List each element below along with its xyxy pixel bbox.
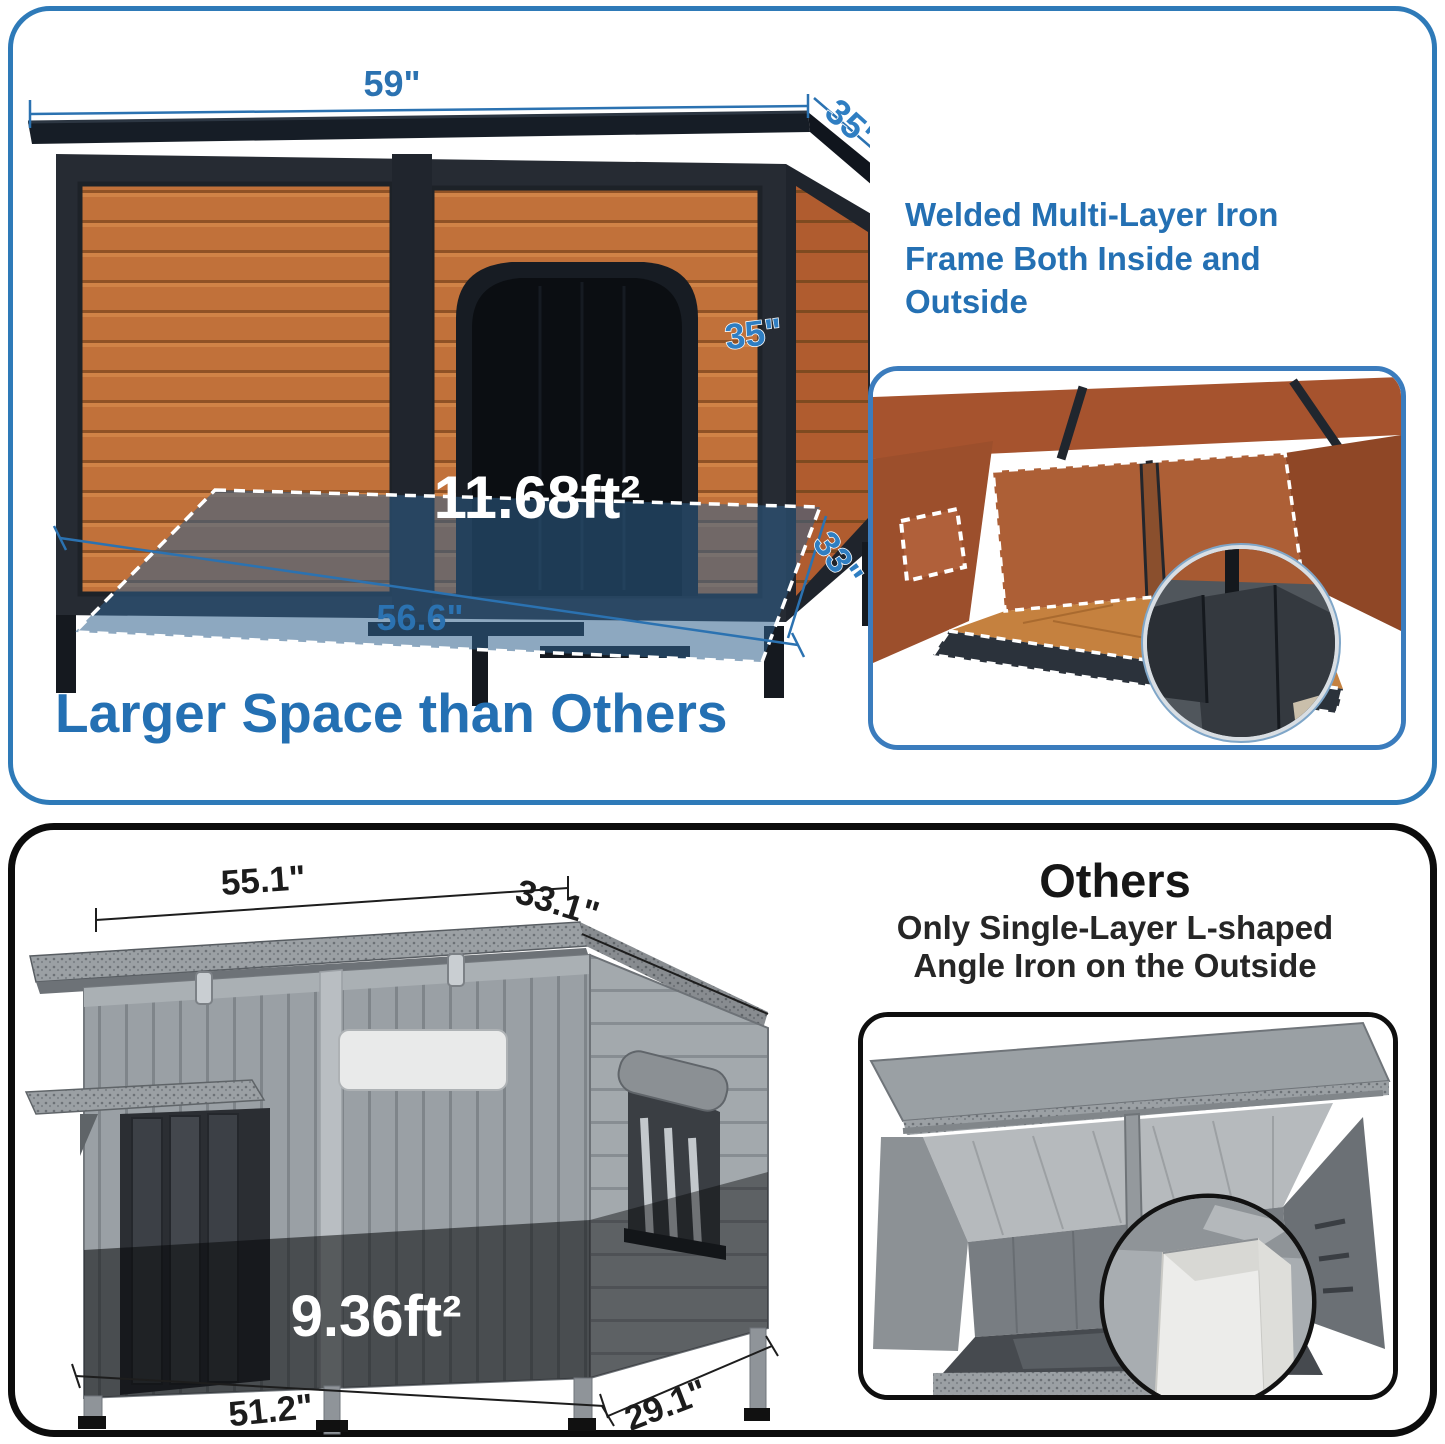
- floor-area-label: 11.68ft²: [434, 464, 641, 531]
- others-subtitle-line: Angle Iron on the Outside: [835, 947, 1395, 985]
- product-infographic: 11.68ft² 59" 35" 35" 56.6" 33" Welded Mu…: [0, 0, 1445, 1444]
- others-subtitle-line: Only Single-Layer L-shaped: [835, 909, 1395, 947]
- iron-corner-detail-circle: [1142, 544, 1340, 742]
- others-dim-floor-depth-label: 29.1": [619, 1372, 712, 1439]
- others-floor-area-label: 9.36ft²: [291, 1284, 462, 1349]
- others-heading-block: Others Only Single-Layer L-shaped Angle …: [835, 856, 1395, 985]
- others-house-photo: 9.36ft² 55.1" 33.1" 51.2": [20, 860, 860, 1440]
- callout-line: Welded Multi-Layer Iron: [905, 193, 1425, 237]
- dim-floor-width-label: 56.6": [376, 597, 463, 638]
- others-dim-roof-width: 55.1": [96, 860, 568, 932]
- others-interior-illustration: [863, 1017, 1393, 1395]
- interior-inset-photo: [868, 366, 1406, 750]
- others-dim-roof-width-label: 55.1": [220, 860, 307, 903]
- others-interior-inset-photo: [858, 1012, 1398, 1400]
- others-nameplate: [339, 1030, 507, 1090]
- others-title: Others: [835, 856, 1395, 905]
- product-house-photo: 11.68ft² 59" 35" 35" 56.6" 33": [20, 70, 870, 780]
- others-dim-floor-width-label: 51.2": [227, 1387, 315, 1435]
- welded-frame-callout: Welded Multi-Layer Iron Frame Both Insid…: [905, 193, 1425, 324]
- callout-line: Frame Both Inside and: [905, 237, 1425, 281]
- interior-inset-illustration: [873, 371, 1401, 745]
- l-angle-detail-circle: [1102, 1196, 1314, 1395]
- others-subtitle: Only Single-Layer L-shaped Angle Iron on…: [835, 909, 1395, 984]
- dim-roof-width-label: 59": [363, 70, 420, 104]
- callout-line: Outside: [905, 280, 1425, 324]
- headline-larger-space: Larger Space than Others: [55, 681, 955, 745]
- dim-height-label: 35": [723, 310, 785, 358]
